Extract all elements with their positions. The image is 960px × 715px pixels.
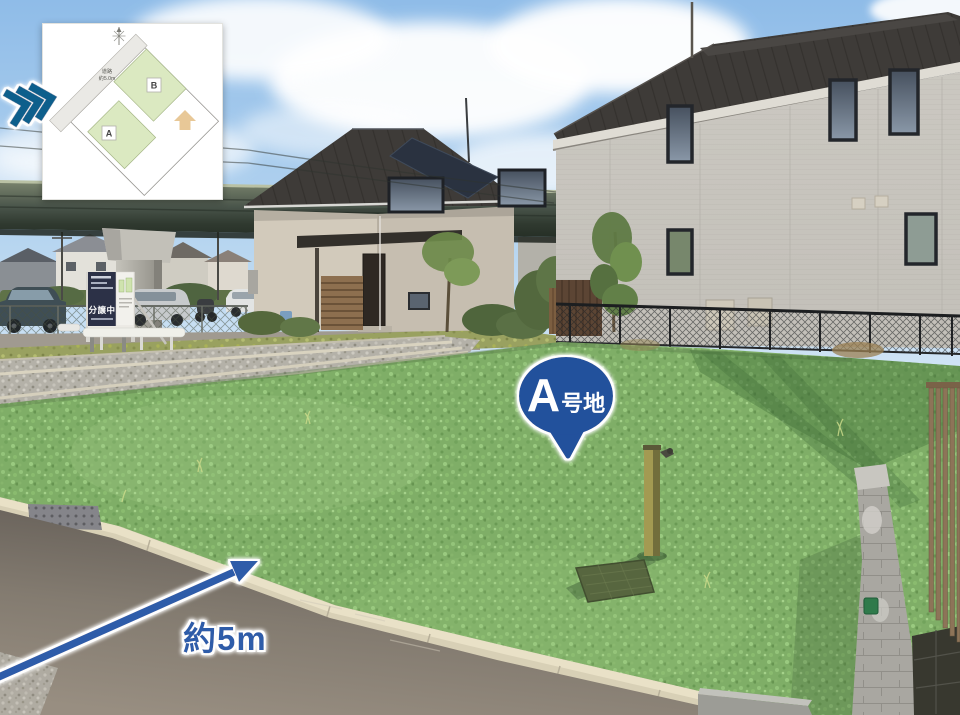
vent [852, 198, 865, 209]
window [668, 230, 692, 274]
svg-text:約5.0m: 約5.0m [99, 74, 116, 82]
window [830, 80, 856, 140]
svg-text:道路: 道路 [102, 67, 113, 75]
window [906, 214, 936, 264]
direction-chevrons [0, 72, 72, 134]
sign-navy-panel [88, 272, 116, 326]
window [890, 70, 918, 134]
window [668, 106, 692, 162]
entrance-door [363, 254, 385, 326]
lot-a-label: A [102, 126, 116, 140]
vent [875, 196, 888, 207]
sign-sale-text: 分譲中 [88, 305, 115, 315]
window-small [409, 293, 429, 309]
green-marker-object [864, 598, 878, 614]
wood-fence [321, 276, 363, 330]
svg-text:B: B [151, 81, 158, 91]
lot-b-label: B [147, 78, 161, 92]
svg-text:A: A [106, 129, 113, 139]
stone-wall [912, 626, 960, 715]
compass-icon [113, 27, 126, 45]
property-photo: 分譲中 道路 約5.0m B A [0, 0, 960, 715]
